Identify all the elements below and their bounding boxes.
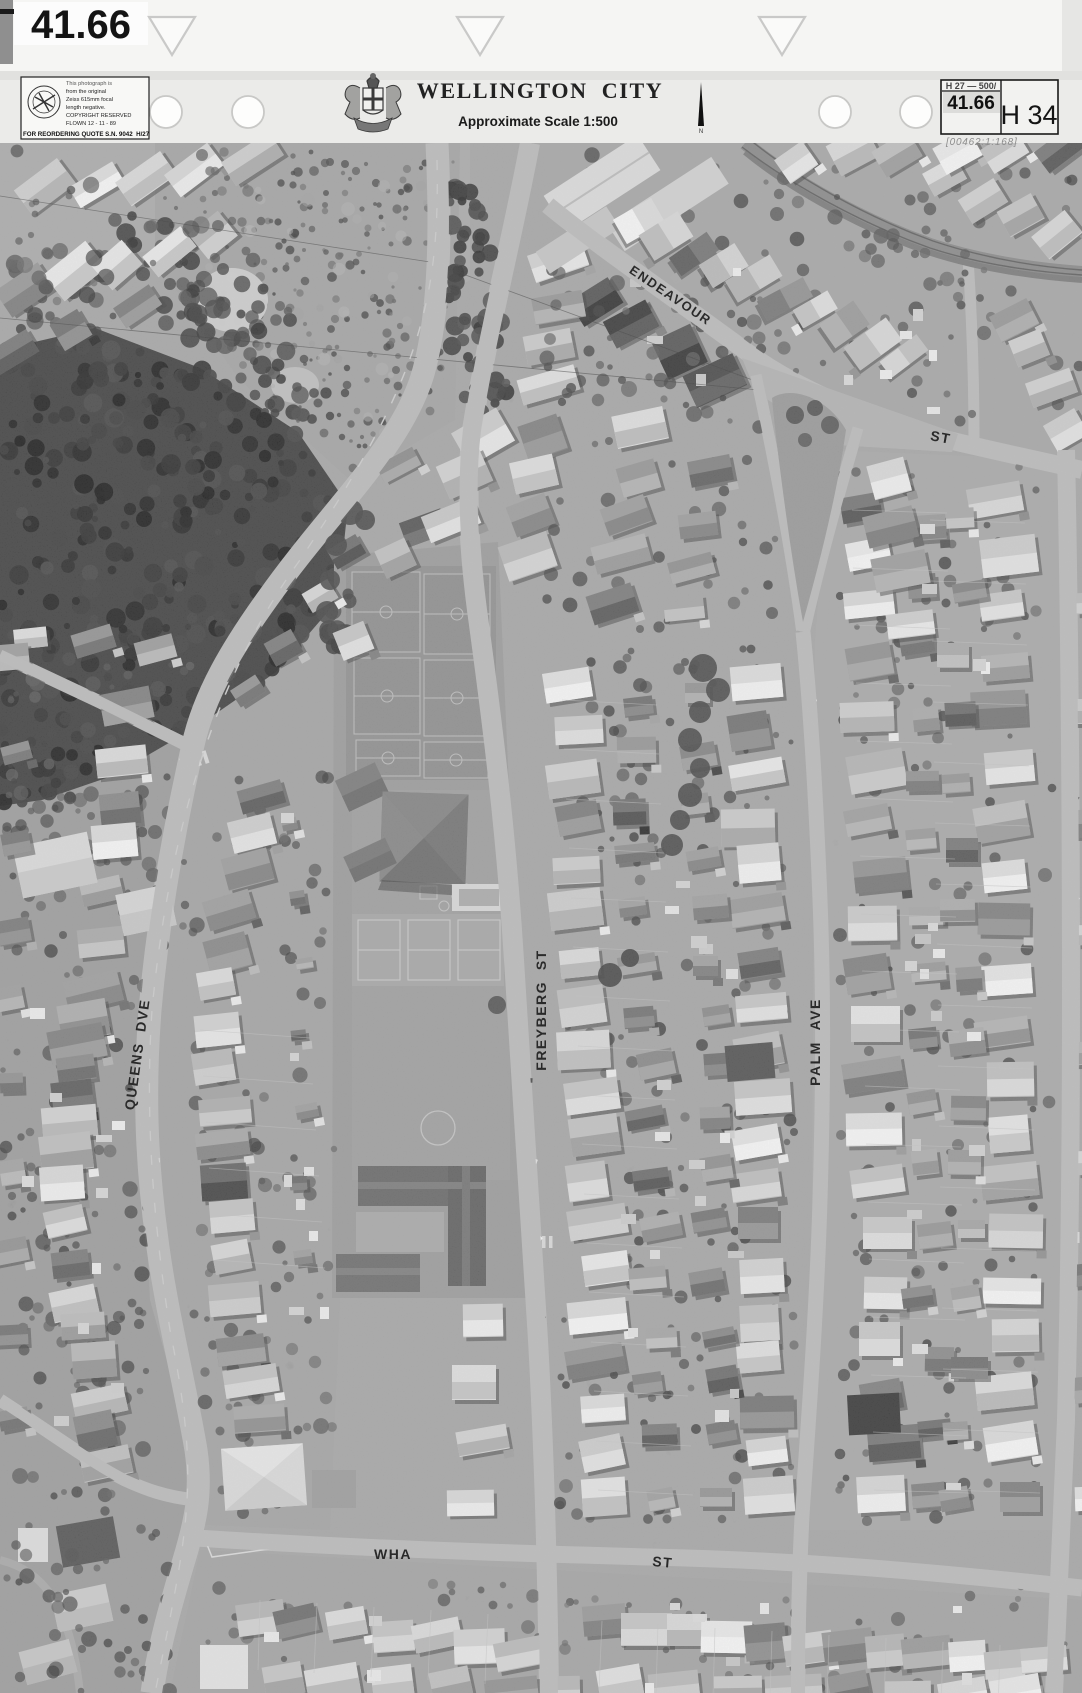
svg-text:FOR REORDERING QUOTE S.N. 9042: FOR REORDERING QUOTE S.N. 9042 H/27: [23, 131, 150, 138]
svg-text:from the original: from the original: [66, 89, 106, 95]
svg-text:N: N: [699, 129, 703, 135]
svg-text:WELLINGTON CITY: WELLINGTON CITY: [417, 78, 663, 103]
svg-text:[00462:1:168]: [00462:1:168]: [945, 137, 1018, 148]
svg-text:41.66: 41.66: [31, 3, 131, 47]
svg-text:length negative.: length negative.: [66, 105, 106, 111]
svg-text:41.66: 41.66: [947, 93, 995, 114]
svg-text:This photograph is: This photograph is: [66, 81, 112, 87]
svg-text:COPYRIGHT RESERVED: COPYRIGHT RESERVED: [66, 113, 131, 119]
svg-text:Approximate Scale 1:500: Approximate Scale 1:500: [458, 114, 618, 129]
svg-text:Zeiss 615mm focal: Zeiss 615mm focal: [66, 97, 113, 103]
svg-text:FLOWN 12 - 11 - 89: FLOWN 12 - 11 - 89: [66, 121, 116, 127]
svg-text:H 34: H 34: [1000, 100, 1057, 130]
svg-text:H 27 — 500/: H 27 — 500/: [946, 81, 997, 91]
